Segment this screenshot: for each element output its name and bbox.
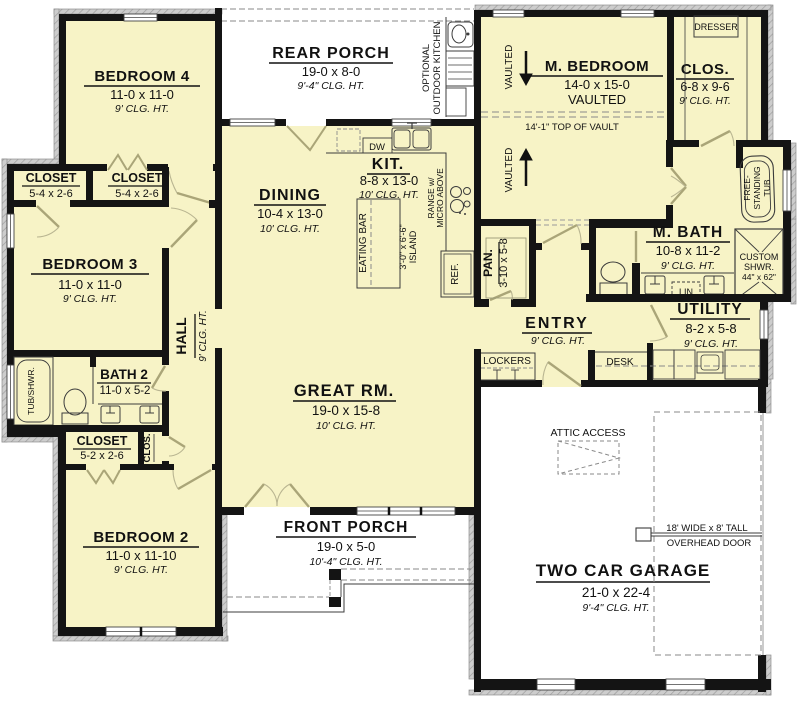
- svg-text:LOCKERS: LOCKERS: [483, 356, 531, 367]
- svg-text:TWO CAR GARAGE: TWO CAR GARAGE: [536, 561, 711, 580]
- svg-text:FREE-: FREE-: [742, 175, 752, 201]
- svg-text:KIT.: KIT.: [372, 156, 404, 173]
- svg-text:9'-4" CLG. HT.: 9'-4" CLG. HT.: [297, 80, 364, 92]
- svg-text:10' CLG. HT.: 10' CLG. HT.: [316, 420, 376, 432]
- svg-text:9' CLG. HT.: 9' CLG. HT.: [661, 260, 715, 272]
- svg-text:19-0 x 8-0: 19-0 x 8-0: [302, 64, 361, 79]
- svg-text:CLOS.: CLOS.: [681, 61, 729, 78]
- svg-text:9' CLG. HT.: 9' CLG. HT.: [679, 96, 731, 107]
- svg-text:STANDING: STANDING: [752, 166, 762, 209]
- svg-text:11-0 x 5-2: 11-0 x 5-2: [100, 385, 151, 397]
- svg-text:44" x 62": 44" x 62": [742, 272, 776, 282]
- svg-text:BEDROOM 2: BEDROOM 2: [93, 529, 188, 546]
- svg-text:10-8 x 11-2: 10-8 x 11-2: [656, 243, 721, 258]
- svg-text:CLOSET: CLOSET: [77, 434, 128, 448]
- svg-text:SHWR.: SHWR.: [744, 262, 774, 272]
- svg-text:VAULTED: VAULTED: [504, 45, 515, 90]
- svg-text:11-0 x 11-0: 11-0 x 11-0: [58, 277, 122, 292]
- svg-text:ISLAND: ISLAND: [408, 230, 418, 263]
- svg-text:14-0 x 15-0: 14-0 x 15-0: [564, 77, 630, 92]
- svg-text:14'-1" TOP OF VAULT: 14'-1" TOP OF VAULT: [525, 122, 619, 133]
- svg-text:9' CLG. HT.: 9' CLG. HT.: [114, 564, 168, 576]
- svg-text:10-4 x 13-0: 10-4 x 13-0: [257, 206, 323, 221]
- svg-text:CUSTOM: CUSTOM: [740, 252, 779, 262]
- svg-text:8-8 x 13-0: 8-8 x 13-0: [360, 173, 419, 188]
- svg-text:M. BEDROOM: M. BEDROOM: [545, 58, 649, 75]
- svg-text:EATING BAR: EATING BAR: [358, 213, 369, 273]
- svg-text:BEDROOM 3: BEDROOM 3: [42, 256, 137, 273]
- svg-text:DRESSER: DRESSER: [694, 22, 738, 32]
- svg-text:9' CLG. HT.: 9' CLG. HT.: [684, 338, 738, 350]
- svg-text:REAR PORCH: REAR PORCH: [272, 45, 390, 62]
- svg-text:18' WIDE x 8' TALL: 18' WIDE x 8' TALL: [666, 523, 747, 534]
- svg-text:9' CLG. HT.: 9' CLG. HT.: [531, 335, 585, 347]
- svg-text:PAN.: PAN.: [481, 249, 495, 277]
- svg-text:3'-0" x 6'-6": 3'-0" x 6'-6": [398, 224, 408, 269]
- svg-text:OPTIONAL: OPTIONAL: [421, 44, 432, 92]
- svg-text:FRONT PORCH: FRONT PORCH: [284, 519, 409, 536]
- svg-text:ATTIC ACCESS: ATTIC ACCESS: [550, 427, 625, 439]
- svg-text:TUB: TUB: [762, 179, 772, 196]
- svg-text:GREAT RM.: GREAT RM.: [294, 382, 394, 400]
- svg-text:DINING: DINING: [259, 187, 321, 204]
- svg-text:OVERHEAD DOOR: OVERHEAD DOOR: [667, 538, 752, 549]
- svg-text:19-0 x 15-8: 19-0 x 15-8: [312, 403, 380, 418]
- svg-text:9' CLG. HT.: 9' CLG. HT.: [115, 103, 169, 115]
- svg-text:VAULTED: VAULTED: [504, 148, 515, 193]
- svg-text:BEDROOM 4: BEDROOM 4: [94, 68, 190, 85]
- svg-text:ENTRY: ENTRY: [525, 315, 589, 332]
- svg-text:9' CLG. HT.: 9' CLG. HT.: [63, 293, 117, 305]
- svg-text:11-0 x 11-10: 11-0 x 11-10: [105, 548, 176, 563]
- svg-text:10' CLG. HT.: 10' CLG. HT.: [260, 223, 320, 235]
- svg-text:5-4 x 2-6: 5-4 x 2-6: [29, 188, 72, 200]
- svg-text:VAULTED: VAULTED: [568, 92, 626, 107]
- svg-text:9' CLG. HT.: 9' CLG. HT.: [198, 310, 209, 362]
- svg-text:8-2 x 5-8: 8-2 x 5-8: [685, 321, 736, 336]
- svg-text:TUB/SHWR.: TUB/SHWR.: [26, 367, 36, 415]
- svg-text:3-10 x 5-8: 3-10 x 5-8: [498, 238, 510, 288]
- svg-text:5-2 x 2-6: 5-2 x 2-6: [80, 450, 123, 462]
- svg-text:CLOSET: CLOSET: [112, 171, 163, 185]
- svg-text:MICRO ABOVE: MICRO ABOVE: [435, 168, 445, 228]
- svg-text:CLOS.: CLOS.: [142, 433, 153, 462]
- svg-text:HALL: HALL: [173, 317, 189, 355]
- svg-text:19-0 x 5-0: 19-0 x 5-0: [317, 539, 376, 554]
- svg-text:DW: DW: [369, 142, 385, 153]
- svg-text:10'-4" CLG. HT.: 10'-4" CLG. HT.: [309, 556, 382, 568]
- svg-text:M. BATH: M. BATH: [653, 224, 723, 241]
- svg-text:5-4 x 2-6: 5-4 x 2-6: [115, 188, 158, 200]
- svg-text:6-8 x 9-6: 6-8 x 9-6: [680, 80, 729, 94]
- svg-text:11-0 x 11-0: 11-0 x 11-0: [110, 87, 174, 102]
- svg-text:21-0 x 22-4: 21-0 x 22-4: [582, 585, 651, 600]
- svg-text:CLOSET: CLOSET: [26, 171, 77, 185]
- svg-text:OUTDOOR KITCHEN: OUTDOOR KITCHEN: [432, 21, 443, 114]
- svg-text:REF.: REF.: [450, 263, 461, 285]
- svg-text:9'-4" CLG. HT.: 9'-4" CLG. HT.: [582, 602, 649, 614]
- svg-text:UTILITY: UTILITY: [677, 301, 743, 318]
- svg-text:BATH 2: BATH 2: [100, 367, 148, 382]
